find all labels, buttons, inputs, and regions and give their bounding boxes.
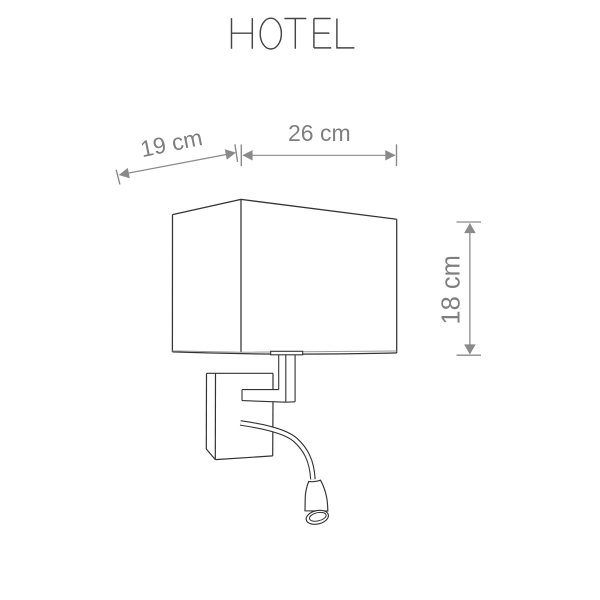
svg-text:18 cm: 18 cm — [438, 255, 466, 324]
svg-text:26 cm: 26 cm — [288, 120, 351, 146]
svg-text:19 cm: 19 cm — [138, 124, 205, 162]
